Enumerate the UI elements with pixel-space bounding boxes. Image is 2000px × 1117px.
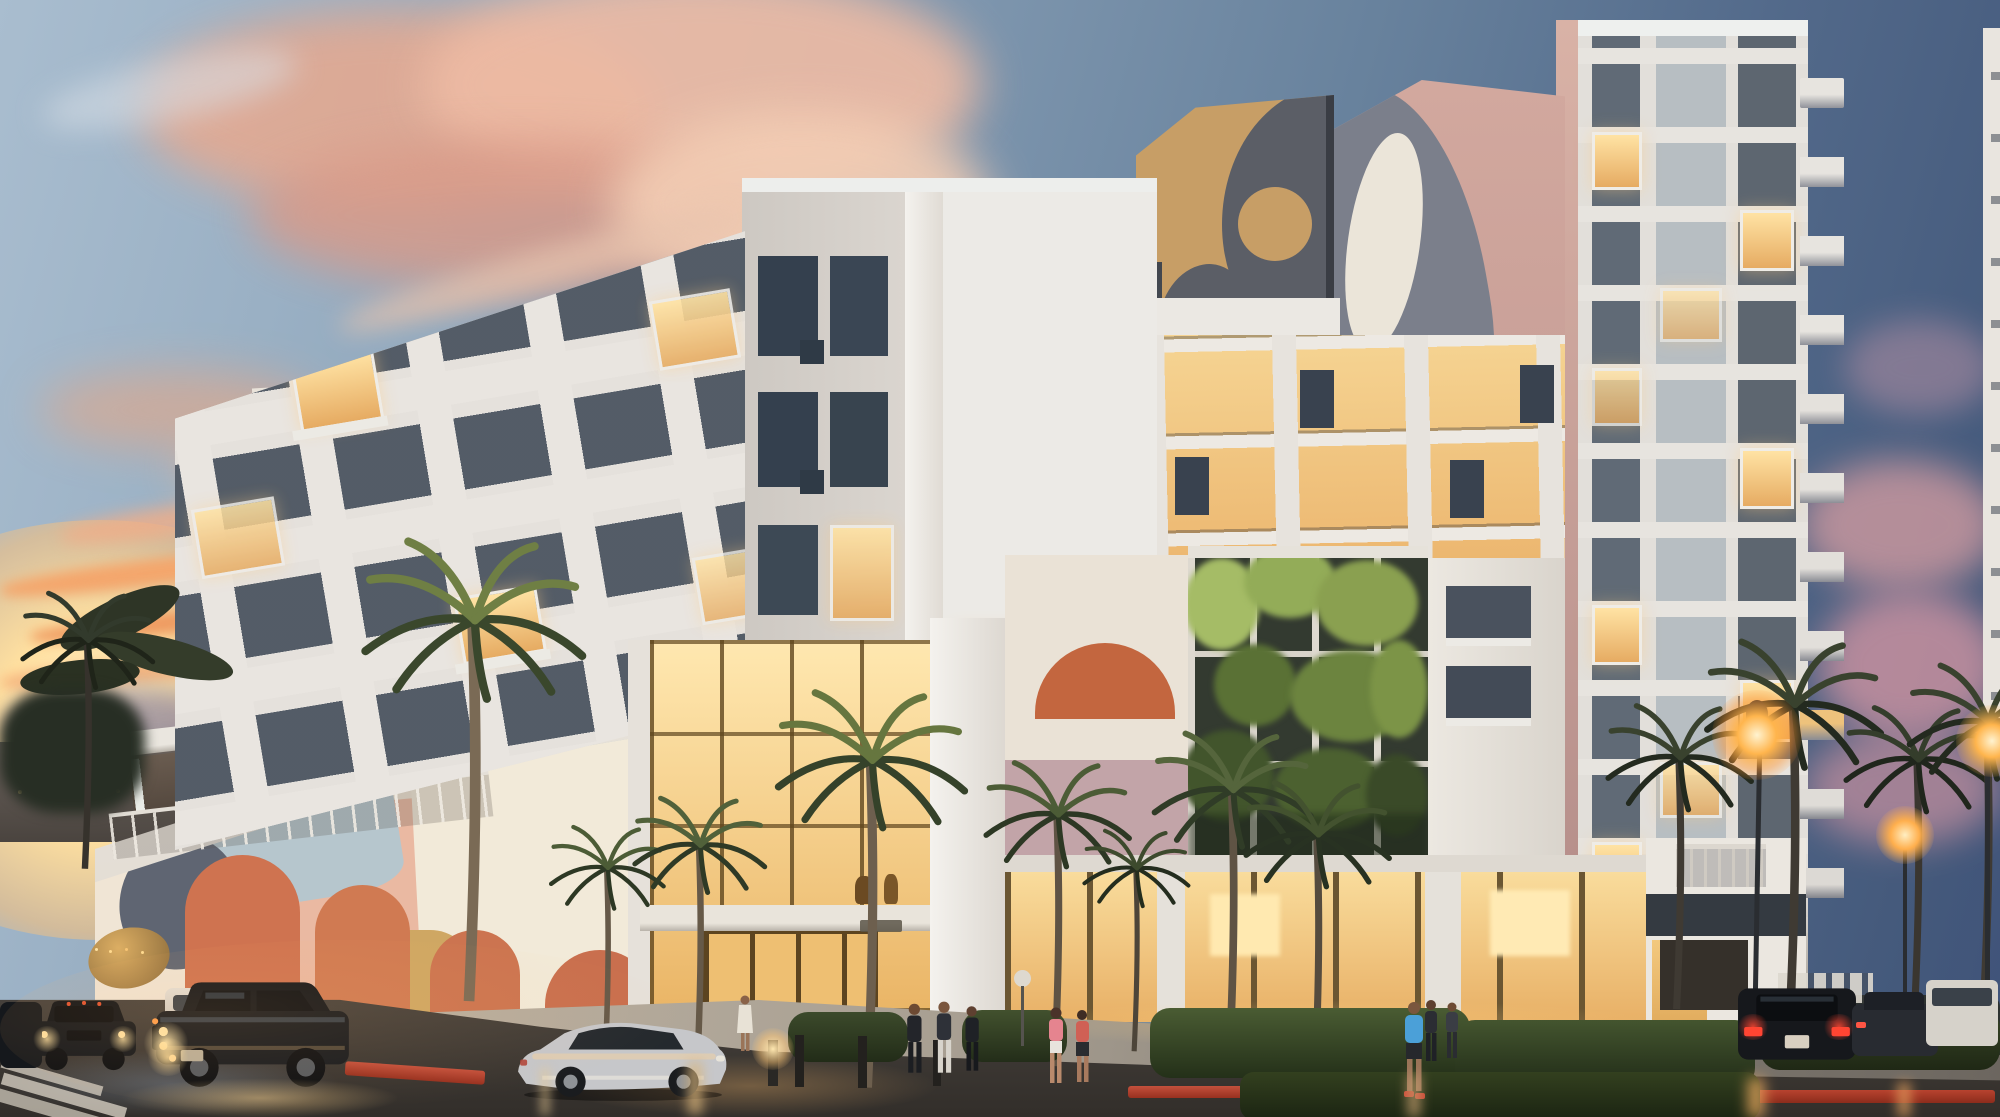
person-legs bbox=[741, 1033, 745, 1051]
center-tower-parapet bbox=[742, 178, 1157, 192]
suv-rim bbox=[297, 1058, 315, 1076]
suv-black-front bbox=[150, 972, 355, 1090]
small-balcony bbox=[1446, 666, 1531, 726]
pedestrian-couple bbox=[1418, 996, 1464, 1080]
suv2-marker bbox=[82, 1001, 86, 1005]
dark-window bbox=[1175, 457, 1209, 515]
woman-legs bbox=[1050, 1053, 1055, 1083]
person-head bbox=[741, 996, 750, 1005]
suv2-marker bbox=[67, 1002, 71, 1006]
tower-parapet bbox=[1556, 20, 1808, 36]
lit-window bbox=[190, 496, 284, 579]
gold-block-circle bbox=[1238, 187, 1312, 261]
hedge bbox=[788, 1012, 908, 1062]
woman-shorts-white bbox=[1050, 1041, 1062, 1053]
person-torso bbox=[965, 1017, 978, 1042]
lit-window bbox=[1660, 288, 1722, 342]
lit-window bbox=[1592, 368, 1642, 426]
person-head bbox=[1448, 1003, 1457, 1012]
right-ground-pier bbox=[1428, 558, 1565, 876]
storefront-display bbox=[1490, 890, 1570, 956]
rsuv-taillight bbox=[1744, 1027, 1762, 1036]
person-torso bbox=[937, 1013, 951, 1040]
tower-side-balcony bbox=[1800, 552, 1844, 582]
small-balcony bbox=[1446, 586, 1531, 646]
rsuv-window-sheen bbox=[1760, 997, 1833, 1002]
woman-head bbox=[1077, 1010, 1087, 1020]
person-legs bbox=[746, 1033, 750, 1051]
palm-tree-silhouette bbox=[10, 576, 167, 876]
tower-window bbox=[830, 256, 888, 356]
suv2-windshield bbox=[54, 1006, 113, 1022]
pedestrians-women bbox=[1040, 1002, 1102, 1098]
road-reflection-streak bbox=[1748, 1078, 1764, 1117]
person-head bbox=[1426, 1000, 1436, 1010]
dark-sedan-roof bbox=[1864, 992, 1924, 1010]
suv-foglight bbox=[169, 1055, 176, 1062]
person-legs bbox=[916, 1042, 921, 1073]
suv-window-sheen bbox=[205, 993, 244, 999]
road-reflection-streak bbox=[1408, 1075, 1420, 1117]
person-legs bbox=[908, 1042, 913, 1073]
person-legs bbox=[946, 1040, 951, 1073]
suv2-wheel bbox=[45, 1048, 67, 1070]
woman-top-red bbox=[1076, 1021, 1089, 1042]
suv2-headlight bbox=[118, 1031, 125, 1038]
far-right-building-windows bbox=[1991, 40, 2000, 700]
white-dress bbox=[737, 1005, 753, 1033]
suv-beltline bbox=[160, 1017, 345, 1022]
person-legs bbox=[1432, 1033, 1437, 1061]
hedge-front bbox=[1240, 1072, 1760, 1117]
suv2-grille bbox=[67, 1030, 102, 1040]
person-torso bbox=[1425, 1011, 1437, 1033]
woman-skirt-dark bbox=[1076, 1042, 1089, 1056]
suv-plate bbox=[181, 1050, 204, 1061]
scene bbox=[0, 0, 2000, 1117]
sedan-warm-reflection bbox=[532, 1053, 716, 1059]
person-legs bbox=[974, 1042, 979, 1071]
tower-side-balcony bbox=[1800, 236, 1844, 266]
lamp-pole bbox=[1903, 840, 1907, 1005]
lit-window bbox=[1592, 132, 1642, 190]
person-head bbox=[938, 1002, 949, 1013]
dark-window bbox=[1520, 365, 1554, 423]
suv-headlight bbox=[159, 1027, 168, 1036]
road-reflection-streak bbox=[1898, 1082, 1910, 1117]
woman-legs bbox=[1057, 1053, 1062, 1083]
person-head bbox=[909, 1004, 920, 1015]
bollard bbox=[858, 1036, 867, 1088]
lit-window bbox=[1740, 210, 1794, 271]
partial-car-left bbox=[0, 1002, 42, 1068]
lamp-finial bbox=[1746, 700, 1768, 728]
person-legs bbox=[1426, 1033, 1431, 1061]
lit-window bbox=[1740, 448, 1794, 509]
suv2-wheel bbox=[102, 1048, 124, 1070]
sedan-headlight bbox=[716, 1056, 725, 1062]
woman-top-pink bbox=[1049, 1019, 1063, 1041]
string-lights bbox=[95, 948, 98, 951]
lit-window bbox=[648, 288, 740, 371]
suv-headlight bbox=[159, 1042, 167, 1050]
white-minibus bbox=[1926, 980, 1998, 1046]
mural-orange-halfdisc bbox=[1035, 643, 1175, 719]
tower-window bbox=[830, 392, 888, 487]
person-legs bbox=[938, 1040, 943, 1073]
tower-side-balcony bbox=[1800, 473, 1844, 503]
person-torso bbox=[1446, 1012, 1458, 1032]
dark-window bbox=[1450, 460, 1484, 518]
woman-head bbox=[1051, 1008, 1062, 1019]
woman-legs bbox=[1084, 1056, 1089, 1082]
suv-right-taillights bbox=[1736, 982, 1858, 1066]
suv-dark-following bbox=[28, 995, 140, 1073]
rsuv-taillight bbox=[1832, 1027, 1850, 1036]
tower-side-balcony bbox=[1800, 157, 1844, 187]
sedan-taillight bbox=[520, 1060, 527, 1066]
bollard bbox=[795, 1035, 804, 1087]
person-legs bbox=[1447, 1032, 1451, 1058]
lit-window bbox=[691, 545, 745, 626]
suv-warm-reflection bbox=[160, 1046, 345, 1050]
living-wall-top-beam bbox=[1188, 546, 1428, 558]
tower-window-small bbox=[800, 470, 824, 494]
road-reflection-streak bbox=[540, 1068, 550, 1115]
rsuv-plate bbox=[1785, 1035, 1809, 1048]
cloud-pink-right bbox=[1845, 320, 1995, 415]
road-reflection-streak bbox=[688, 1062, 702, 1114]
pedestrian-white-dress bbox=[733, 993, 757, 1055]
person-legs bbox=[966, 1042, 971, 1071]
person-legs bbox=[1453, 1032, 1457, 1058]
suv-marker bbox=[152, 1018, 158, 1024]
bollard-lamp bbox=[768, 1040, 778, 1086]
pedestrian-group-entrance bbox=[898, 995, 990, 1087]
tower-side-balcony bbox=[1800, 315, 1844, 345]
foliage bbox=[1370, 640, 1428, 738]
minibus-windows bbox=[1932, 988, 1992, 1006]
tower-side-balcony bbox=[1800, 78, 1844, 108]
dark-window bbox=[1300, 370, 1334, 428]
dark-sedan-taillight bbox=[1856, 1022, 1866, 1028]
tower-side-balcony bbox=[1800, 394, 1844, 424]
foliage bbox=[1316, 560, 1418, 646]
round-sign bbox=[1014, 970, 1031, 987]
person-torso bbox=[907, 1015, 921, 1042]
sign-pole bbox=[1021, 986, 1024, 1046]
lit-window bbox=[1592, 605, 1642, 665]
tower-window-small bbox=[800, 340, 824, 364]
person-head bbox=[966, 1006, 976, 1016]
suv2-marker bbox=[97, 1002, 101, 1006]
woman-legs bbox=[1077, 1056, 1082, 1082]
sedan-rim bbox=[563, 1075, 577, 1089]
